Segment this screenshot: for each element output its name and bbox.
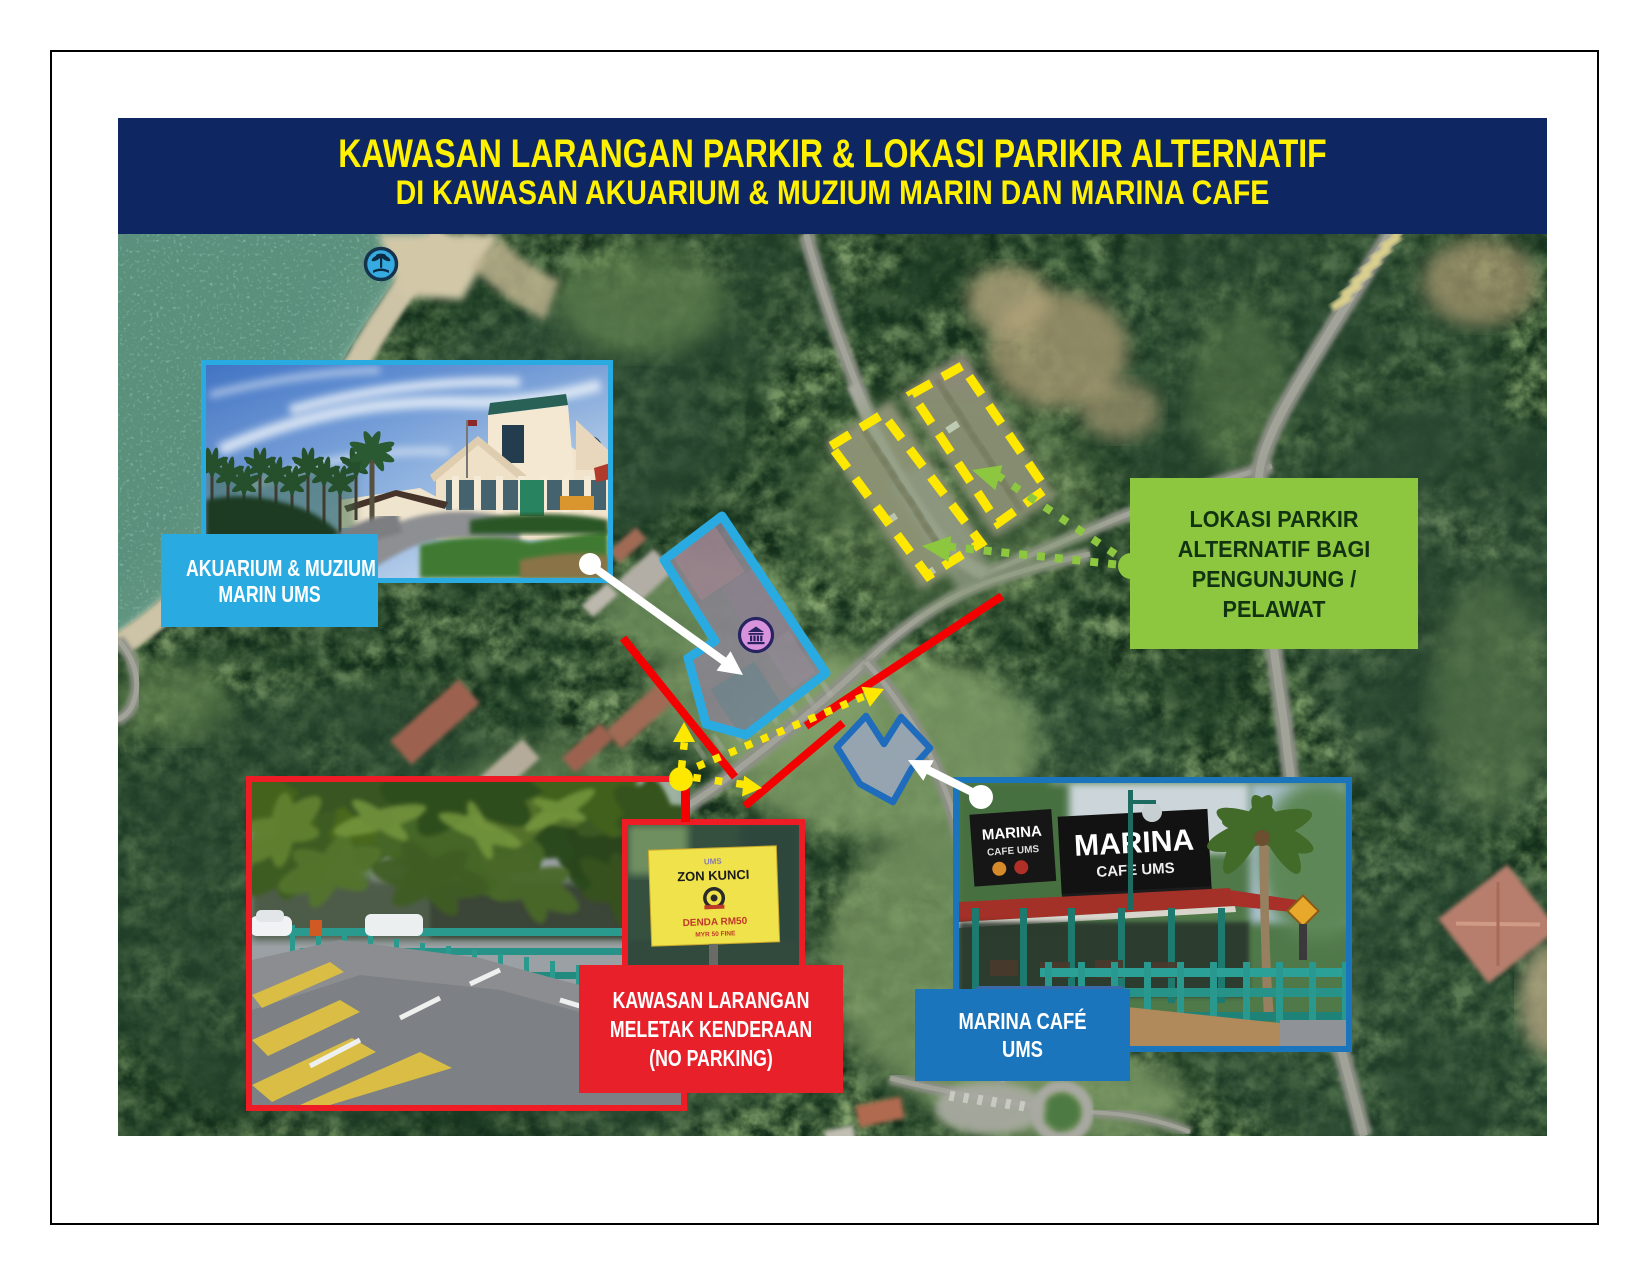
svg-text:MARINA: MARINA	[1073, 824, 1195, 863]
svg-text:UMS: UMS	[704, 857, 723, 867]
svg-text:ZON KUNCI: ZON KUNCI	[677, 867, 750, 885]
svg-text:MYR 50 FINE: MYR 50 FINE	[695, 930, 736, 938]
svg-text:DENDA RM50: DENDA RM50	[682, 916, 747, 929]
